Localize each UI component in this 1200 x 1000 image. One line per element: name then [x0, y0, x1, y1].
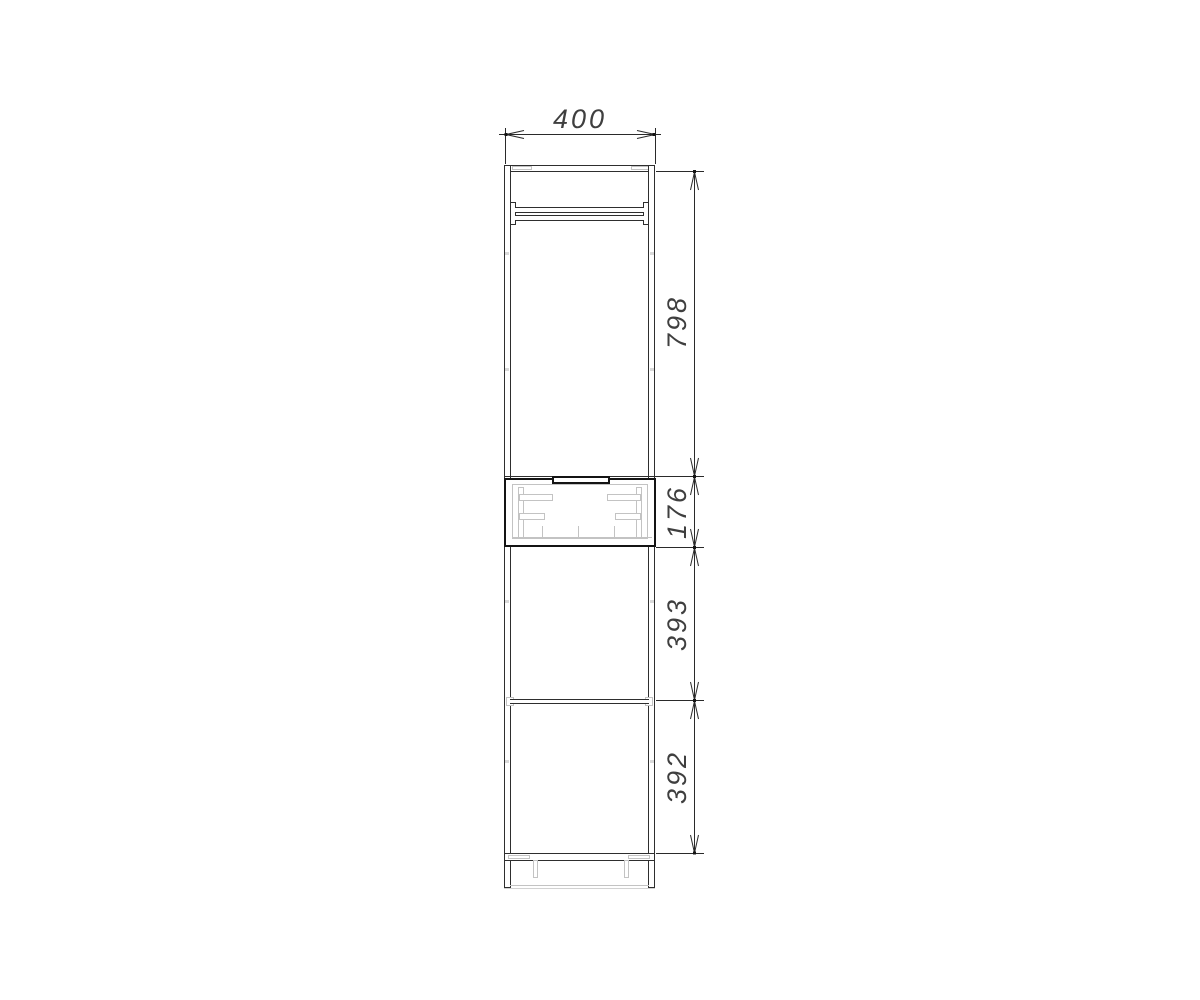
arrow-tip-dot	[693, 170, 696, 173]
arrow-tip-dot	[693, 852, 696, 855]
arrow-tip-dot	[505, 133, 508, 136]
dim-label-width: 400	[535, 104, 625, 134]
arrow-tip-dot	[653, 133, 656, 136]
dim-label-section-middle: 393	[662, 579, 692, 669]
dim-label-drawer: 176	[662, 467, 692, 557]
dim-label-section-bottom: 392	[662, 732, 692, 822]
dimension-linework	[0, 0, 1200, 1000]
arrow-tip-dot	[693, 699, 696, 702]
technical-drawing-canvas: 400 798 176 393 392	[0, 0, 1200, 1000]
arrow-tip-dot	[693, 475, 696, 478]
arrow-tip-dot	[693, 546, 696, 549]
dim-label-section-top: 798	[662, 277, 692, 367]
